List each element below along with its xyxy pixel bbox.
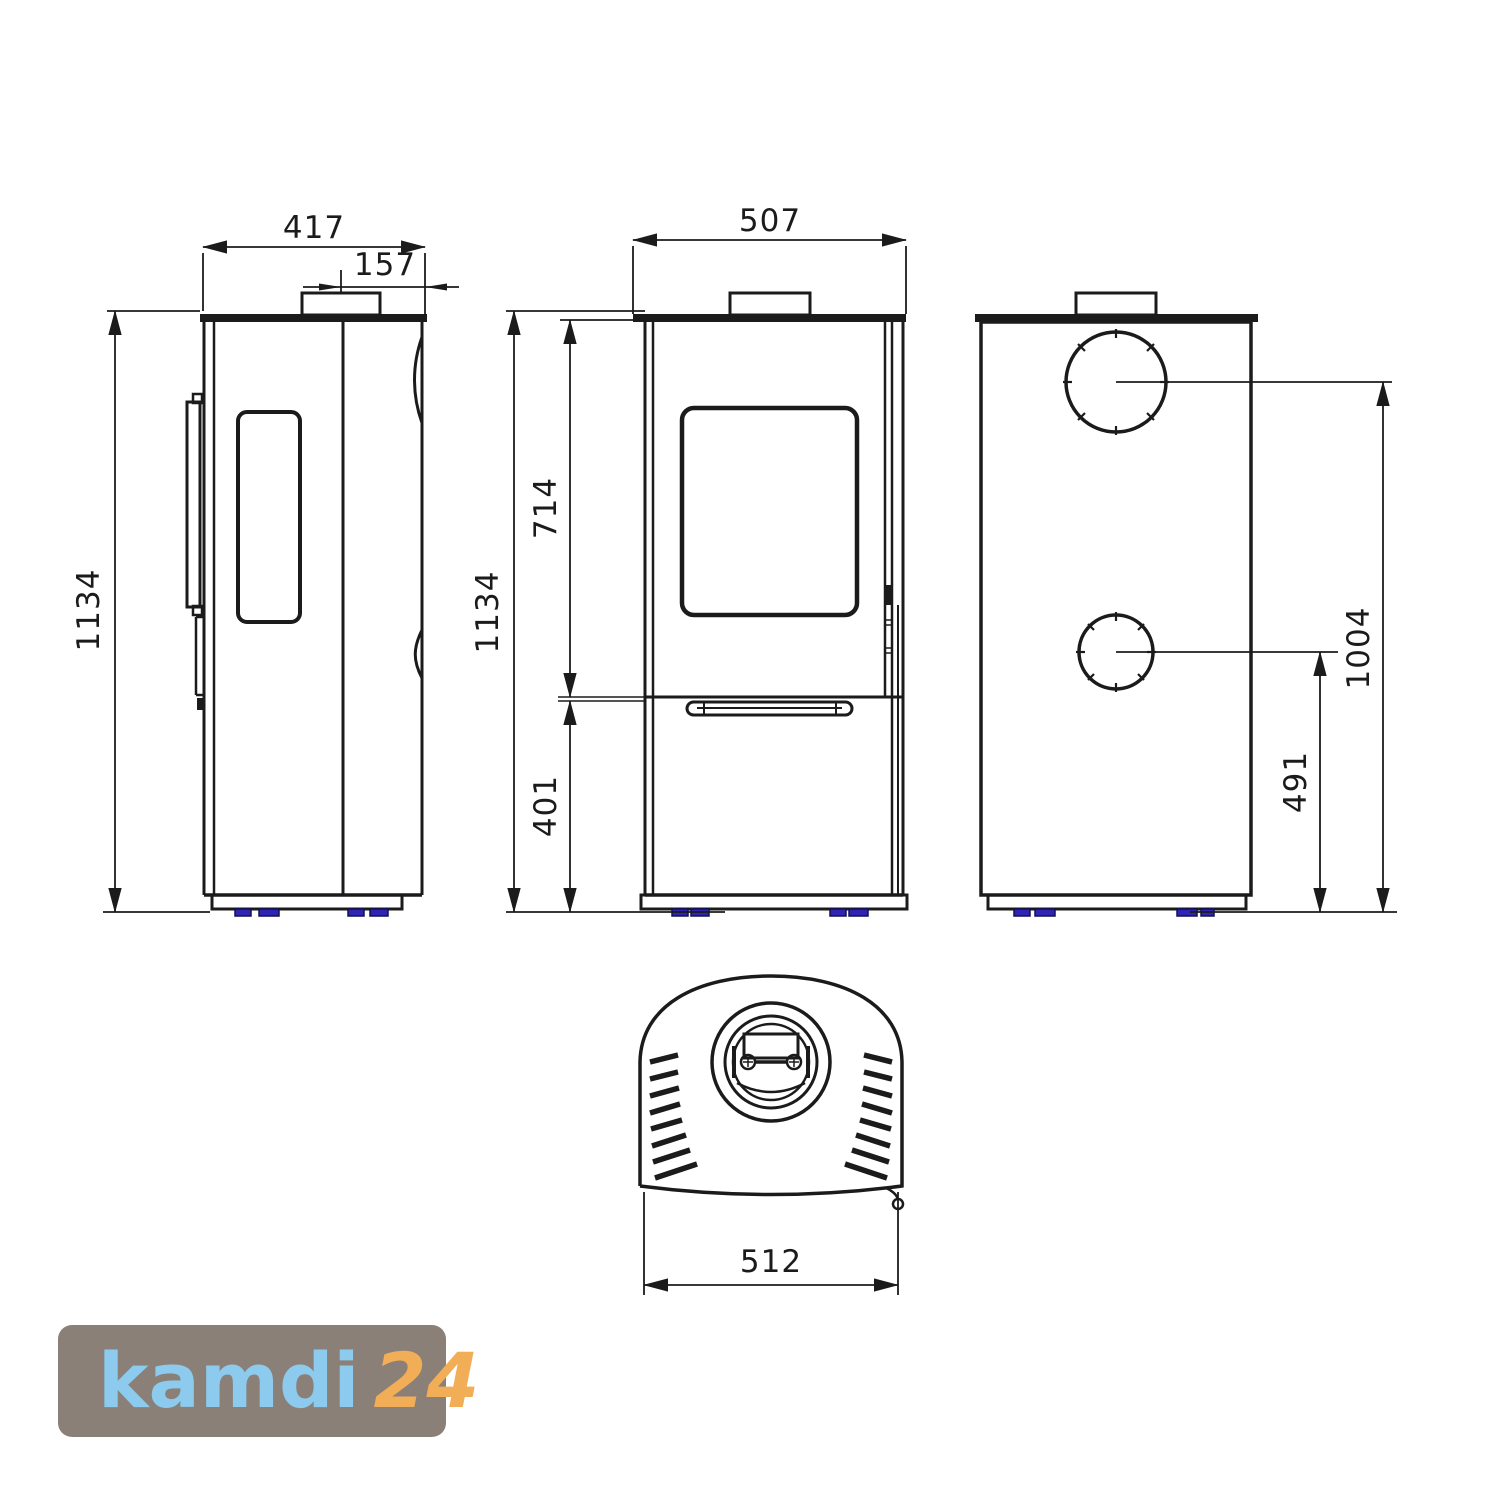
dim-label-507: 507 — [739, 203, 801, 239]
dim-label-157: 157 — [354, 247, 416, 283]
dim-label-491: 491 — [1278, 751, 1314, 813]
side-door-handle — [187, 402, 200, 607]
back-foot-pad — [1014, 909, 1030, 916]
kamdi24-logo: kamdi 24 — [58, 1325, 446, 1437]
front-view — [506, 293, 907, 916]
front-glass-window — [682, 408, 857, 615]
back-flue-collar — [1076, 293, 1156, 315]
front-door-latch — [885, 585, 892, 605]
back-base-skirt — [988, 895, 1246, 909]
side-foot-pad — [235, 909, 251, 916]
dim-label-1004: 1004 — [1341, 607, 1377, 690]
side-foot-pad — [370, 909, 388, 916]
side-door-latch — [197, 698, 205, 710]
front-dimensions: 507 1134 714 401 — [470, 203, 906, 912]
dim-arrow — [319, 284, 341, 291]
top-view — [640, 976, 903, 1209]
dim-label-401: 401 — [528, 775, 564, 837]
front-base-skirt — [641, 895, 907, 909]
dim-label-714: 714 — [528, 477, 564, 539]
stove-technical-drawing: 417 157 1134 — [0, 0, 1500, 1500]
dim-label-512: 512 — [740, 1244, 802, 1280]
front-foot-pad — [830, 909, 846, 916]
back-foot-pad — [1035, 909, 1055, 916]
dim-label-1134-front: 1134 — [470, 571, 506, 654]
dim-arrow — [425, 284, 447, 291]
top-damper-plate — [744, 1034, 798, 1058]
side-flue-collar — [302, 293, 380, 315]
back-dimensions: 1004 491 — [1278, 382, 1383, 912]
logo-suffix-text: 24 — [373, 1343, 479, 1419]
side-view — [103, 293, 427, 916]
technical-drawing-page: 417 157 1134 — [0, 0, 1500, 1500]
top-dimensions: 512 — [644, 1192, 898, 1295]
side-foot-pad — [259, 909, 279, 916]
logo-brand-text: kamdi — [98, 1343, 359, 1419]
side-window-panel — [238, 412, 300, 622]
side-foot-pad — [348, 909, 364, 916]
dim-label-1134-side: 1134 — [71, 569, 107, 652]
front-flue-collar — [730, 293, 810, 315]
back-body — [981, 322, 1251, 895]
back-view — [975, 293, 1397, 916]
front-foot-pad — [849, 909, 868, 916]
side-base-skirt — [212, 895, 402, 909]
top-outline — [640, 976, 902, 1195]
dim-label-417: 417 — [283, 210, 345, 246]
